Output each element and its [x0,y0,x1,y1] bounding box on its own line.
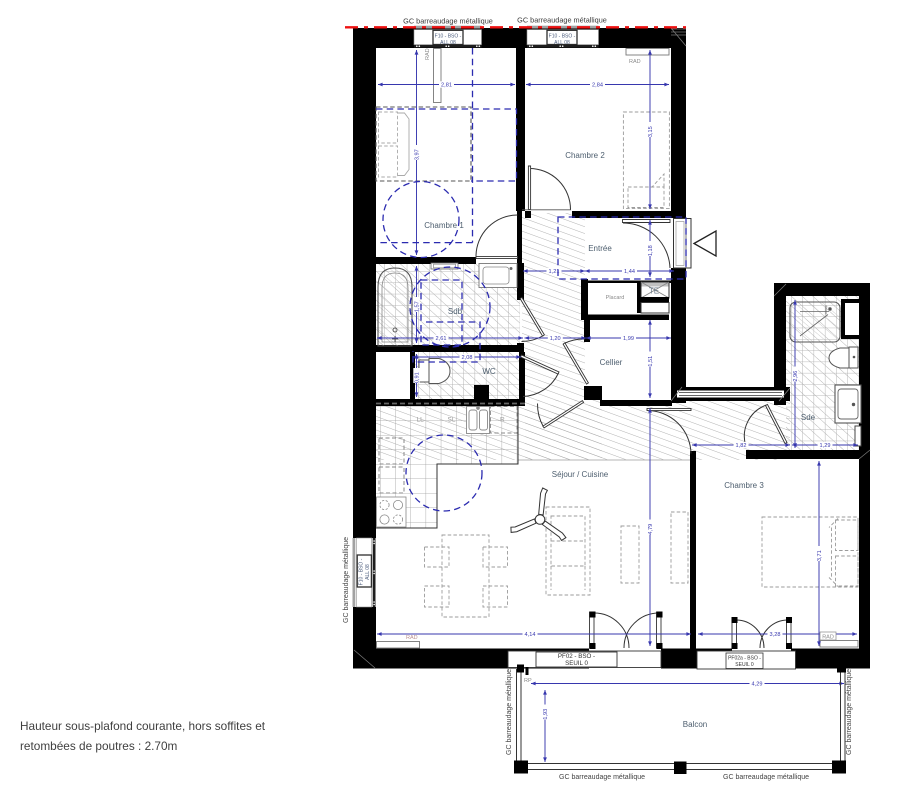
svg-text:4,14: 4,14 [525,632,536,638]
svg-text:Balcon: Balcon [683,720,707,729]
svg-text:4,29: 4,29 [752,682,763,688]
svg-text:F10 - BSO -: F10 - BSO - [435,34,462,40]
svg-text:Placard: Placard [606,295,625,301]
svg-text:1,99: 1,99 [623,336,634,342]
svg-text:GC barreaudage métallique: GC barreaudage métallique [506,669,513,755]
svg-text:RAD: RAD [425,48,431,60]
svg-text:Chambre 1: Chambre 1 [424,221,464,230]
svg-text:TE: TE [649,287,659,296]
svg-text:Sdb: Sdb [448,307,463,316]
svg-text:1,57: 1,57 [415,301,421,312]
svg-text:Séjour / Cuisine: Séjour / Cuisine [552,470,609,479]
svg-text:2,08: 2,08 [462,355,473,361]
svg-text:LL: LL [417,417,425,424]
svg-text:GC barreaudage métallique: GC barreaudage métallique [343,537,350,623]
svg-text:SEUIL 0: SEUIL 0 [565,660,588,667]
svg-text:2,61: 2,61 [436,336,447,342]
svg-text:Sde: Sde [801,413,816,422]
svg-text:3,71: 3,71 [817,550,823,561]
svg-text:RP: RP [524,678,532,684]
svg-text:3,97: 3,97 [415,149,421,160]
svg-text:1,18: 1,18 [648,245,654,256]
svg-text:4,79: 4,79 [648,524,654,535]
svg-text:F10 - BSO -: F10 - BSO - [549,34,576,40]
svg-text:Entrée: Entrée [588,244,612,253]
svg-text:RAD: RAD [406,635,418,641]
svg-text:0,91: 0,91 [415,372,421,383]
svg-text:1,82: 1,82 [736,443,747,449]
svg-text:1,20: 1,20 [550,336,561,342]
svg-text:2,81: 2,81 [441,83,452,89]
svg-text:GC barreaudage métallique: GC barreaudage métallique [403,17,493,26]
svg-text:PF02a - BSO -: PF02a - BSO - [728,656,761,662]
svg-text:GC barreaudage métallique: GC barreaudage métallique [846,669,853,755]
svg-text:3,28: 3,28 [770,632,781,638]
svg-text:GC barreaudage métallique: GC barreaudage métallique [723,774,809,781]
svg-text:RAD: RAD [822,635,834,641]
svg-text:WC: WC [482,367,496,376]
svg-text:F10 - BSO -: F10 - BSO - [359,558,365,585]
svg-text:2,84: 2,84 [592,83,603,89]
svg-text:Cellier: Cellier [600,358,623,367]
svg-text:Chambre 2: Chambre 2 [565,151,605,160]
svg-text:ALL 08: ALL 08 [365,564,371,580]
svg-text:2,96: 2,96 [793,371,799,382]
svg-text:3,15: 3,15 [648,126,654,137]
svg-text:R: R [500,417,505,424]
svg-text:GC barreaudage métallique: GC barreaudage métallique [517,16,607,25]
svg-text:RAD: RAD [629,59,641,65]
svg-text:Chambre 3: Chambre 3 [724,481,764,490]
svg-text:1,93: 1,93 [543,709,549,720]
svg-text:1,51: 1,51 [648,356,654,367]
svg-text:1,29: 1,29 [820,443,831,449]
svg-text:GC barreaudage métallique: GC barreaudage métallique [559,774,645,781]
svg-text:PF02 - BSO -: PF02 - BSO - [558,653,595,660]
svg-text:SL: SL [448,417,456,424]
svg-text:SEUIL 0: SEUIL 0 [735,662,754,668]
svg-text:1,44: 1,44 [624,269,635,275]
